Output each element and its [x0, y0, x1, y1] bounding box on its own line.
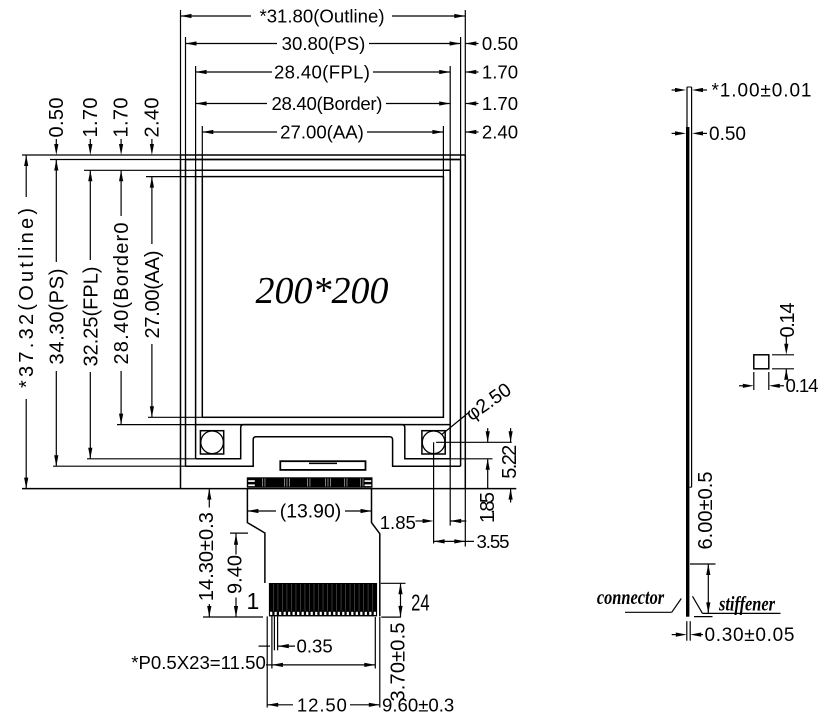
svg-text:1.85: 1.85 [477, 492, 499, 523]
svg-text:1.70: 1.70 [482, 93, 518, 114]
svg-text:34.30(PS): 34.30(PS) [46, 269, 68, 365]
svg-text:*1.00±0.01: *1.00±0.01 [712, 81, 812, 102]
svg-text:1.85: 1.85 [380, 512, 416, 533]
svg-text:28.40(Border): 28.40(Border) [272, 93, 383, 114]
svg-text:0.35: 0.35 [297, 635, 333, 656]
svg-text:200*200: 200*200 [256, 270, 389, 312]
svg-text:(13.90): (13.90) [280, 500, 341, 522]
svg-text:1: 1 [247, 588, 260, 614]
svg-text:32.25(FPL): 32.25(FPL) [80, 267, 102, 367]
svg-text:2.40: 2.40 [142, 98, 164, 138]
svg-text:6.00±0.5: 6.00±0.5 [695, 472, 717, 550]
svg-text:0.14: 0.14 [786, 375, 819, 396]
svg-text:*31.80(Outline): *31.80(Outline) [259, 6, 384, 27]
svg-text:5.22: 5.22 [499, 445, 521, 479]
svg-text:0.50: 0.50 [482, 33, 518, 54]
svg-text:30.80(PS): 30.80(PS) [282, 33, 366, 54]
svg-text:24: 24 [411, 590, 430, 616]
svg-text:3.70±0.5: 3.70±0.5 [388, 623, 410, 702]
svg-text:14.30±0.3: 14.30±0.3 [196, 512, 218, 601]
svg-text:2.40: 2.40 [482, 122, 518, 143]
svg-text:stiffener: stiffener [718, 593, 776, 616]
svg-text:0.50: 0.50 [709, 124, 746, 145]
svg-text:1.70: 1.70 [80, 98, 102, 138]
svg-text:0.30±0.05: 0.30±0.05 [705, 625, 795, 646]
svg-text:0.50: 0.50 [46, 98, 68, 138]
svg-text:28.40(FPL): 28.40(FPL) [274, 62, 370, 83]
svg-text:*P0.5X23=11.50: *P0.5X23=11.50 [131, 652, 266, 673]
svg-text:connector: connector [597, 586, 665, 609]
svg-text:12.50: 12.50 [297, 694, 347, 715]
svg-text:28.40(Border0: 28.40(Border0 [111, 223, 133, 365]
svg-text:9.60±0.3: 9.60±0.3 [382, 694, 454, 715]
svg-text:27.00(AA): 27.00(AA) [142, 251, 164, 339]
svg-text:*37.32(Outline): *37.32(Outline) [16, 208, 38, 388]
svg-text:3.55: 3.55 [477, 531, 510, 552]
svg-text:1.70: 1.70 [482, 62, 518, 83]
svg-text:27.00(AA): 27.00(AA) [280, 122, 364, 143]
svg-text:0.14: 0.14 [777, 303, 799, 338]
svg-text:9.40: 9.40 [224, 555, 246, 594]
svg-text:1.70: 1.70 [111, 98, 133, 138]
